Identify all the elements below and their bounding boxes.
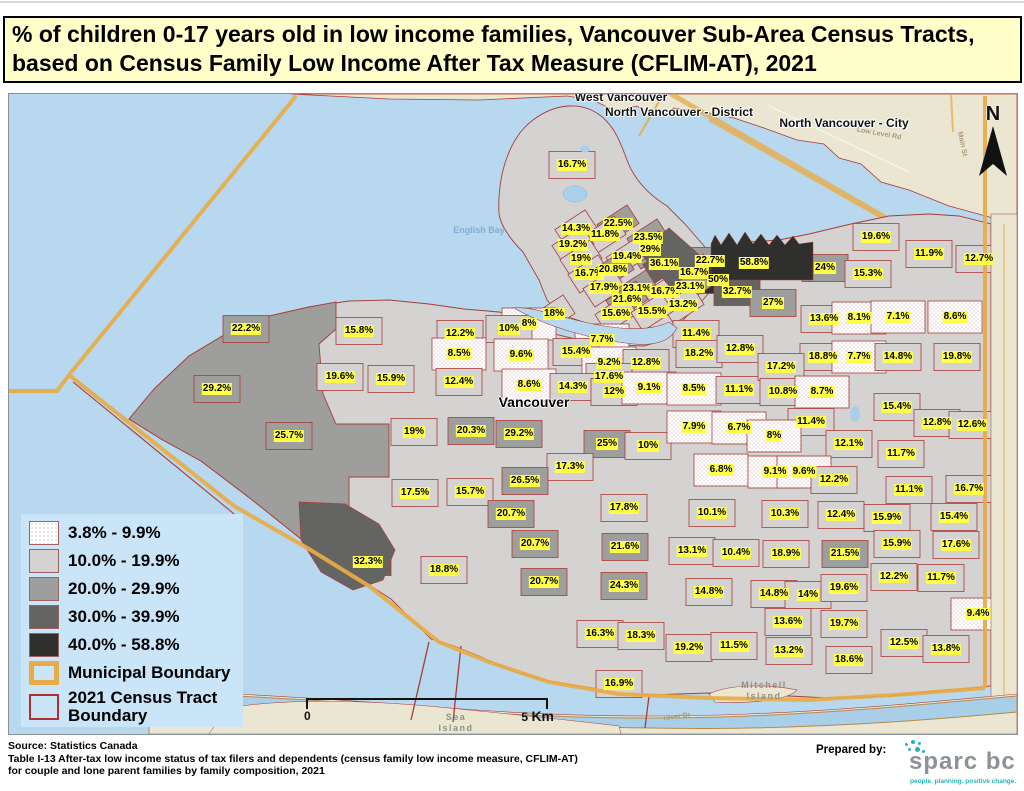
legend-class-row: 20.0% - 29.9% <box>29 577 235 601</box>
legend-class-swatch <box>29 605 59 629</box>
tract-cell <box>676 341 722 368</box>
legend-class-swatch <box>29 577 59 601</box>
tract-cell <box>821 611 867 638</box>
tract-cell <box>821 575 867 602</box>
scale-bar: 0 5 Km <box>306 697 548 731</box>
tract-cell <box>826 647 872 674</box>
north-arrow-icon <box>971 124 1015 180</box>
tract-cell <box>666 635 712 662</box>
tract-cell <box>601 495 647 522</box>
tract-cell <box>766 638 812 665</box>
legend-row-census-tract: 2021 Census Tract Boundary <box>29 689 235 725</box>
tract-cell <box>928 301 982 333</box>
tract-cell <box>618 623 664 650</box>
tract-cell <box>317 364 363 391</box>
prepared-by-label: Prepared by: <box>816 744 886 756</box>
tract-cell <box>436 369 482 396</box>
tract-cell <box>886 477 932 504</box>
tract-cell <box>811 467 857 494</box>
tract-cell <box>494 339 548 371</box>
census-tract-swatch <box>29 694 59 720</box>
tract-cell <box>336 318 382 345</box>
tract-cell <box>795 376 849 408</box>
source-line: Table I-13 After-tax low income status o… <box>8 753 578 766</box>
legend-class-label: 40.0% - 58.8% <box>68 636 180 654</box>
tract-cell <box>853 224 899 251</box>
tract-cell <box>871 564 917 591</box>
tract-cell <box>822 541 868 568</box>
tract-cell <box>871 301 925 333</box>
tract-cell <box>694 454 748 486</box>
tract-cell <box>931 504 977 531</box>
tract-cell <box>194 376 240 403</box>
north-letter: N <box>971 104 1015 124</box>
tract-cell <box>878 441 924 468</box>
legend-label: 2021 Census Tract Boundary <box>68 689 217 725</box>
tract-cell <box>391 419 437 446</box>
tract-cell <box>521 569 567 596</box>
window-top-line <box>0 1 1024 3</box>
tract-cell <box>750 290 796 317</box>
tract-cell <box>549 152 595 179</box>
tract-cell <box>875 344 921 371</box>
legend-class-swatch <box>29 549 59 573</box>
tract-cell <box>266 423 312 450</box>
tract-cell <box>686 579 732 606</box>
tract-cell <box>874 531 920 558</box>
tract-cell <box>716 377 762 404</box>
legend-class-row: 30.0% - 39.9% <box>29 605 235 629</box>
source-line: for couple and lone parent families by f… <box>8 765 578 778</box>
tract-cell <box>368 366 414 393</box>
legend-class-label: 3.8% - 9.9% <box>68 524 161 542</box>
tract-cell <box>601 573 647 600</box>
tract-cell <box>488 501 534 528</box>
tract-cell <box>949 412 995 439</box>
map-title: % of children 0-17 years old in low inco… <box>3 16 1022 83</box>
tract-cell <box>432 338 486 370</box>
logo-wordmark: sparc bc <box>909 748 1016 776</box>
tract-cell <box>874 394 920 421</box>
tract-cell <box>762 501 808 528</box>
tract-cell <box>933 532 979 559</box>
municipal-boundary-swatch <box>29 661 59 685</box>
source-note: Source: Statistics Canada Table I-13 Aft… <box>8 740 578 778</box>
tract-cell <box>923 636 969 663</box>
tract-cell <box>547 454 593 481</box>
tract-cell <box>881 630 927 657</box>
logo-spark-dot <box>918 742 921 745</box>
legend-class-row: 40.0% - 58.8% <box>29 633 235 657</box>
north-arrow: N <box>971 104 1015 190</box>
tract-cell <box>625 433 671 460</box>
tract-cell <box>818 502 864 529</box>
tract-cell <box>550 374 596 401</box>
tract-cell <box>765 609 811 636</box>
tract-cell <box>486 316 532 343</box>
tract-cell <box>496 421 542 448</box>
legend-class-swatch <box>29 633 59 657</box>
legend-class-label: 10.0% - 19.9% <box>68 552 180 570</box>
tract-cell <box>747 420 801 452</box>
tract-cell <box>392 480 438 507</box>
source-line: Source: Statistics Canada <box>8 740 578 753</box>
tract-cell <box>512 531 558 558</box>
tract-cell <box>577 621 623 648</box>
tract-cell <box>223 316 269 343</box>
tract-cell <box>667 373 721 405</box>
scale-five-label: 5 Km <box>521 708 554 724</box>
legend-class-label: 20.0% - 29.9% <box>68 580 180 598</box>
logo-spark-dot <box>911 740 915 744</box>
legend: 3.8% - 9.9%10.0% - 19.9%20.0% - 29.9%30.… <box>21 514 243 727</box>
tract-cell <box>689 500 735 527</box>
legend-class-swatch <box>29 521 59 545</box>
tract-cell <box>713 540 759 567</box>
logo-spark-dot <box>905 743 908 746</box>
legend-class-label: 30.0% - 39.9% <box>68 608 180 626</box>
tract-cell <box>502 369 556 401</box>
tract-cell <box>447 479 493 506</box>
map-canvas: 16.7%14.3%22.5%11.8%23.5%19.2%29%19%19.4… <box>8 93 1018 735</box>
tract-cell <box>845 261 891 288</box>
tract-cell <box>711 633 757 660</box>
legend-class-row: 10.0% - 19.9% <box>29 549 235 573</box>
tract-cell <box>763 541 809 568</box>
tract-cell <box>421 557 467 584</box>
tract-cell <box>826 431 872 458</box>
tract-cell <box>906 241 952 268</box>
tract-cell <box>669 538 715 565</box>
tract-cell <box>934 344 980 371</box>
scale-bar-bracket <box>306 698 548 710</box>
legend-label: Municipal Boundary <box>68 664 230 682</box>
logo-tagline: people. planning. positive change. <box>910 778 1016 785</box>
scale-zero-label: 0 <box>304 709 311 723</box>
tract-cell <box>717 336 763 363</box>
legend-row-municipal: Municipal Boundary <box>29 661 235 685</box>
tract-cell <box>448 418 494 445</box>
tract-cell <box>864 505 910 532</box>
tract-cell <box>602 534 648 561</box>
sparc-bc-logo: sparc bc people. planning. positive chan… <box>903 744 1021 788</box>
tract-cell <box>502 468 548 495</box>
legend-class-row: 3.8% - 9.9% <box>29 521 235 545</box>
tract-cell <box>918 565 964 592</box>
legend-class-list: 3.8% - 9.9%10.0% - 19.9%20.0% - 29.9%30.… <box>29 521 235 657</box>
